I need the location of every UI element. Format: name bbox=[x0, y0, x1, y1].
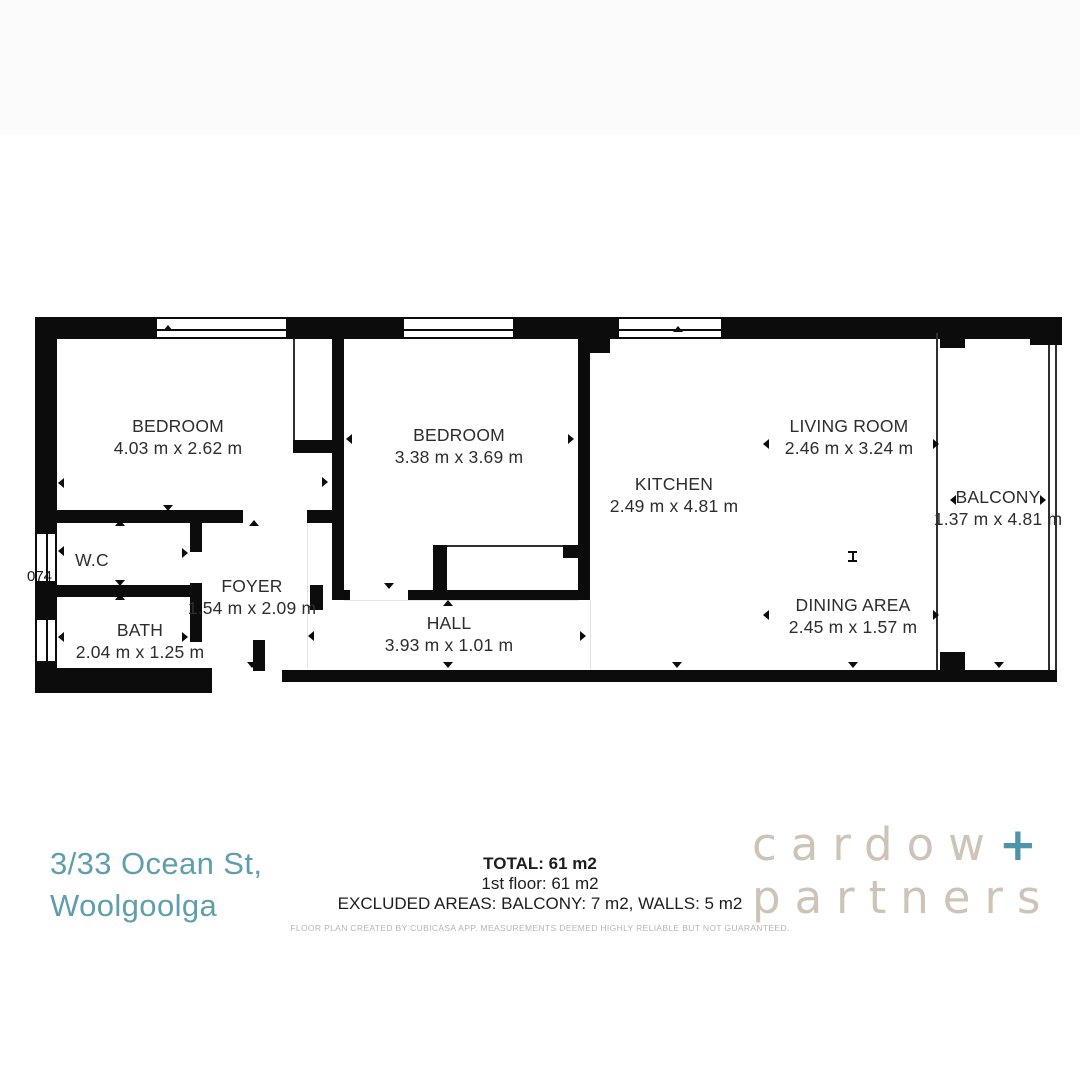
dimension-marker-vertical bbox=[848, 551, 857, 562]
dimension-arrow-up bbox=[384, 327, 394, 333]
window bbox=[35, 618, 57, 663]
wall-segment bbox=[563, 545, 578, 558]
room-label-hall: HALL 3.93 m x 1.01 m bbox=[385, 613, 513, 657]
dimension-arrow-right bbox=[322, 477, 328, 487]
dimension-arrow-left bbox=[763, 610, 769, 620]
room-name: DINING AREA bbox=[789, 595, 917, 617]
room-dims: 1.54 m x 2.09 m bbox=[188, 598, 316, 620]
dimension-arrow-down bbox=[115, 677, 125, 683]
dimension-arrow-left bbox=[950, 495, 956, 505]
logo-word-cardow: cardow bbox=[752, 818, 999, 871]
room-name: W.C bbox=[75, 550, 109, 572]
wall-segment bbox=[940, 328, 965, 348]
total-area: TOTAL: 61 m2 bbox=[240, 853, 840, 874]
logo-plus-icon: + bbox=[999, 818, 1037, 871]
dimension-arrow-up bbox=[443, 600, 453, 606]
wall-segment bbox=[307, 510, 344, 523]
floor-area: 1st floor: 61 m2 bbox=[240, 874, 840, 894]
room-dims: 2.46 m x 3.24 m bbox=[785, 438, 913, 460]
wall-segment bbox=[1030, 317, 1062, 345]
room-label-living-room: LIVING ROOM 2.46 m x 3.24 m bbox=[785, 416, 913, 460]
room-label-bedroom-1: BEDROOM 4.03 m x 2.62 m bbox=[114, 416, 242, 460]
room-dims: 3.38 m x 3.69 m bbox=[395, 447, 523, 469]
property-address: 3/33 Ocean St, Woolgoolga bbox=[50, 843, 262, 927]
dimension-arrow-right bbox=[580, 631, 586, 641]
dimension-arrow-right bbox=[182, 548, 188, 558]
dimension-arrow-up bbox=[249, 520, 259, 526]
floor-plan-page: BEDROOM 4.03 m x 2.62 m BEDROOM 3.38 m x… bbox=[0, 0, 1080, 1080]
wall-segment bbox=[35, 668, 192, 693]
window bbox=[402, 317, 515, 339]
room-label-wc: W.C bbox=[75, 550, 109, 572]
dimension-arrow-down bbox=[115, 580, 125, 586]
excluded-areas: EXCLUDED AREAS: BALCONY: 7 m2, WALLS: 5 … bbox=[240, 894, 840, 914]
room-dims: 2.45 m x 1.57 m bbox=[789, 617, 917, 639]
address-line-2: Woolgoolga bbox=[50, 885, 262, 927]
window-mullion bbox=[157, 329, 286, 331]
dimension-arrow-left bbox=[308, 631, 314, 641]
dimension-arrow-up bbox=[994, 326, 1004, 332]
dimension-arrow-down bbox=[384, 583, 394, 589]
room-dims: 4.03 m x 2.62 m bbox=[114, 438, 242, 460]
room-name: BEDROOM bbox=[395, 425, 523, 447]
closet-front-line bbox=[293, 339, 295, 440]
background-band bbox=[0, 0, 1080, 135]
dimension-arrow-left bbox=[346, 434, 352, 444]
room-dims: 3.93 m x 1.01 m bbox=[385, 635, 513, 657]
dimension-arrow-down bbox=[443, 662, 453, 668]
wall-segment bbox=[282, 670, 1057, 682]
wall-segment bbox=[515, 317, 617, 339]
area-boundary-line bbox=[590, 600, 591, 670]
room-name: KITCHEN bbox=[610, 474, 738, 496]
agency-logo: cardow+ partners bbox=[752, 818, 1054, 924]
room-dims: 1.37 m x 4.81 m bbox=[934, 509, 1062, 531]
room-label-foyer: FOYER 1.54 m x 2.09 m bbox=[188, 576, 316, 620]
wall-segment bbox=[35, 317, 57, 532]
wall-segment bbox=[332, 590, 350, 600]
window bbox=[155, 317, 288, 339]
room-label-bath: BATH 2.04 m x 1.25 m bbox=[76, 620, 204, 664]
wall-segment bbox=[190, 510, 202, 552]
dimension-arrow-right bbox=[182, 632, 188, 642]
dimension-arrow-down bbox=[247, 662, 257, 668]
address-line-1: 3/33 Ocean St, bbox=[50, 843, 262, 885]
window-mullion bbox=[619, 329, 721, 331]
wall-segment bbox=[332, 317, 344, 600]
dimension-arrow-up bbox=[847, 326, 857, 332]
dimension-arrow-left bbox=[58, 546, 64, 556]
room-name: LIVING ROOM bbox=[785, 416, 913, 438]
room-label-dining-area: DINING AREA 2.45 m x 1.57 m bbox=[789, 595, 917, 639]
wall-segment bbox=[578, 339, 610, 353]
dimension-arrow-right bbox=[568, 434, 574, 444]
window bbox=[617, 317, 723, 339]
room-label-balcony: BALCONY 1.37 m x 4.81 m bbox=[934, 487, 1062, 531]
edge-measure-label: 074 bbox=[27, 568, 52, 585]
room-name: HALL bbox=[385, 613, 513, 635]
room-name: FOYER bbox=[188, 576, 316, 598]
window-mullion bbox=[404, 329, 513, 331]
wall-segment bbox=[723, 317, 1062, 339]
room-dims: 2.04 m x 1.25 m bbox=[76, 642, 204, 664]
area-boundary-line bbox=[344, 600, 578, 601]
dimension-arrow-up bbox=[115, 520, 125, 526]
dimension-arrow-left bbox=[58, 478, 64, 488]
dimension-arrow-up bbox=[673, 326, 683, 332]
wall-segment bbox=[35, 510, 243, 523]
room-label-bedroom-2: BEDROOM 3.38 m x 3.69 m bbox=[395, 425, 523, 469]
dimension-arrow-up bbox=[163, 325, 173, 331]
dimension-arrow-left bbox=[58, 632, 64, 642]
room-name: BEDROOM bbox=[114, 416, 242, 438]
wall-segment bbox=[192, 668, 212, 693]
dimension-arrow-left bbox=[763, 439, 769, 449]
disclaimer-text: FLOOR PLAN CREATED BY CUBICASA APP. MEAS… bbox=[240, 923, 840, 934]
logo-line-1: cardow+ bbox=[752, 818, 1054, 871]
area-summary: TOTAL: 61 m2 1st floor: 61 m2 EXCLUDED A… bbox=[240, 853, 840, 934]
wall-segment bbox=[293, 440, 332, 453]
wall-segment bbox=[940, 652, 965, 670]
dimension-arrow-down bbox=[163, 505, 173, 511]
dimension-arrow-down bbox=[848, 662, 858, 668]
dimension-arrow-right bbox=[933, 439, 939, 449]
dimension-arrow-up bbox=[115, 594, 125, 600]
logo-word-partners: partners bbox=[752, 871, 1054, 924]
room-label-kitchen: KITCHEN 2.49 m x 4.81 m bbox=[610, 474, 738, 518]
window-mullion bbox=[46, 620, 48, 661]
dimension-arrow-down bbox=[672, 662, 682, 668]
logo-line-2: partners bbox=[752, 871, 1054, 924]
dimension-arrow-down bbox=[994, 662, 1004, 668]
robe-front-line bbox=[447, 545, 563, 547]
dimension-arrow-right bbox=[933, 610, 939, 620]
wall-segment bbox=[433, 545, 447, 600]
dimension-arrow-right bbox=[1040, 495, 1046, 505]
room-dims: 2.49 m x 4.81 m bbox=[610, 496, 738, 518]
wall-segment bbox=[578, 317, 590, 600]
